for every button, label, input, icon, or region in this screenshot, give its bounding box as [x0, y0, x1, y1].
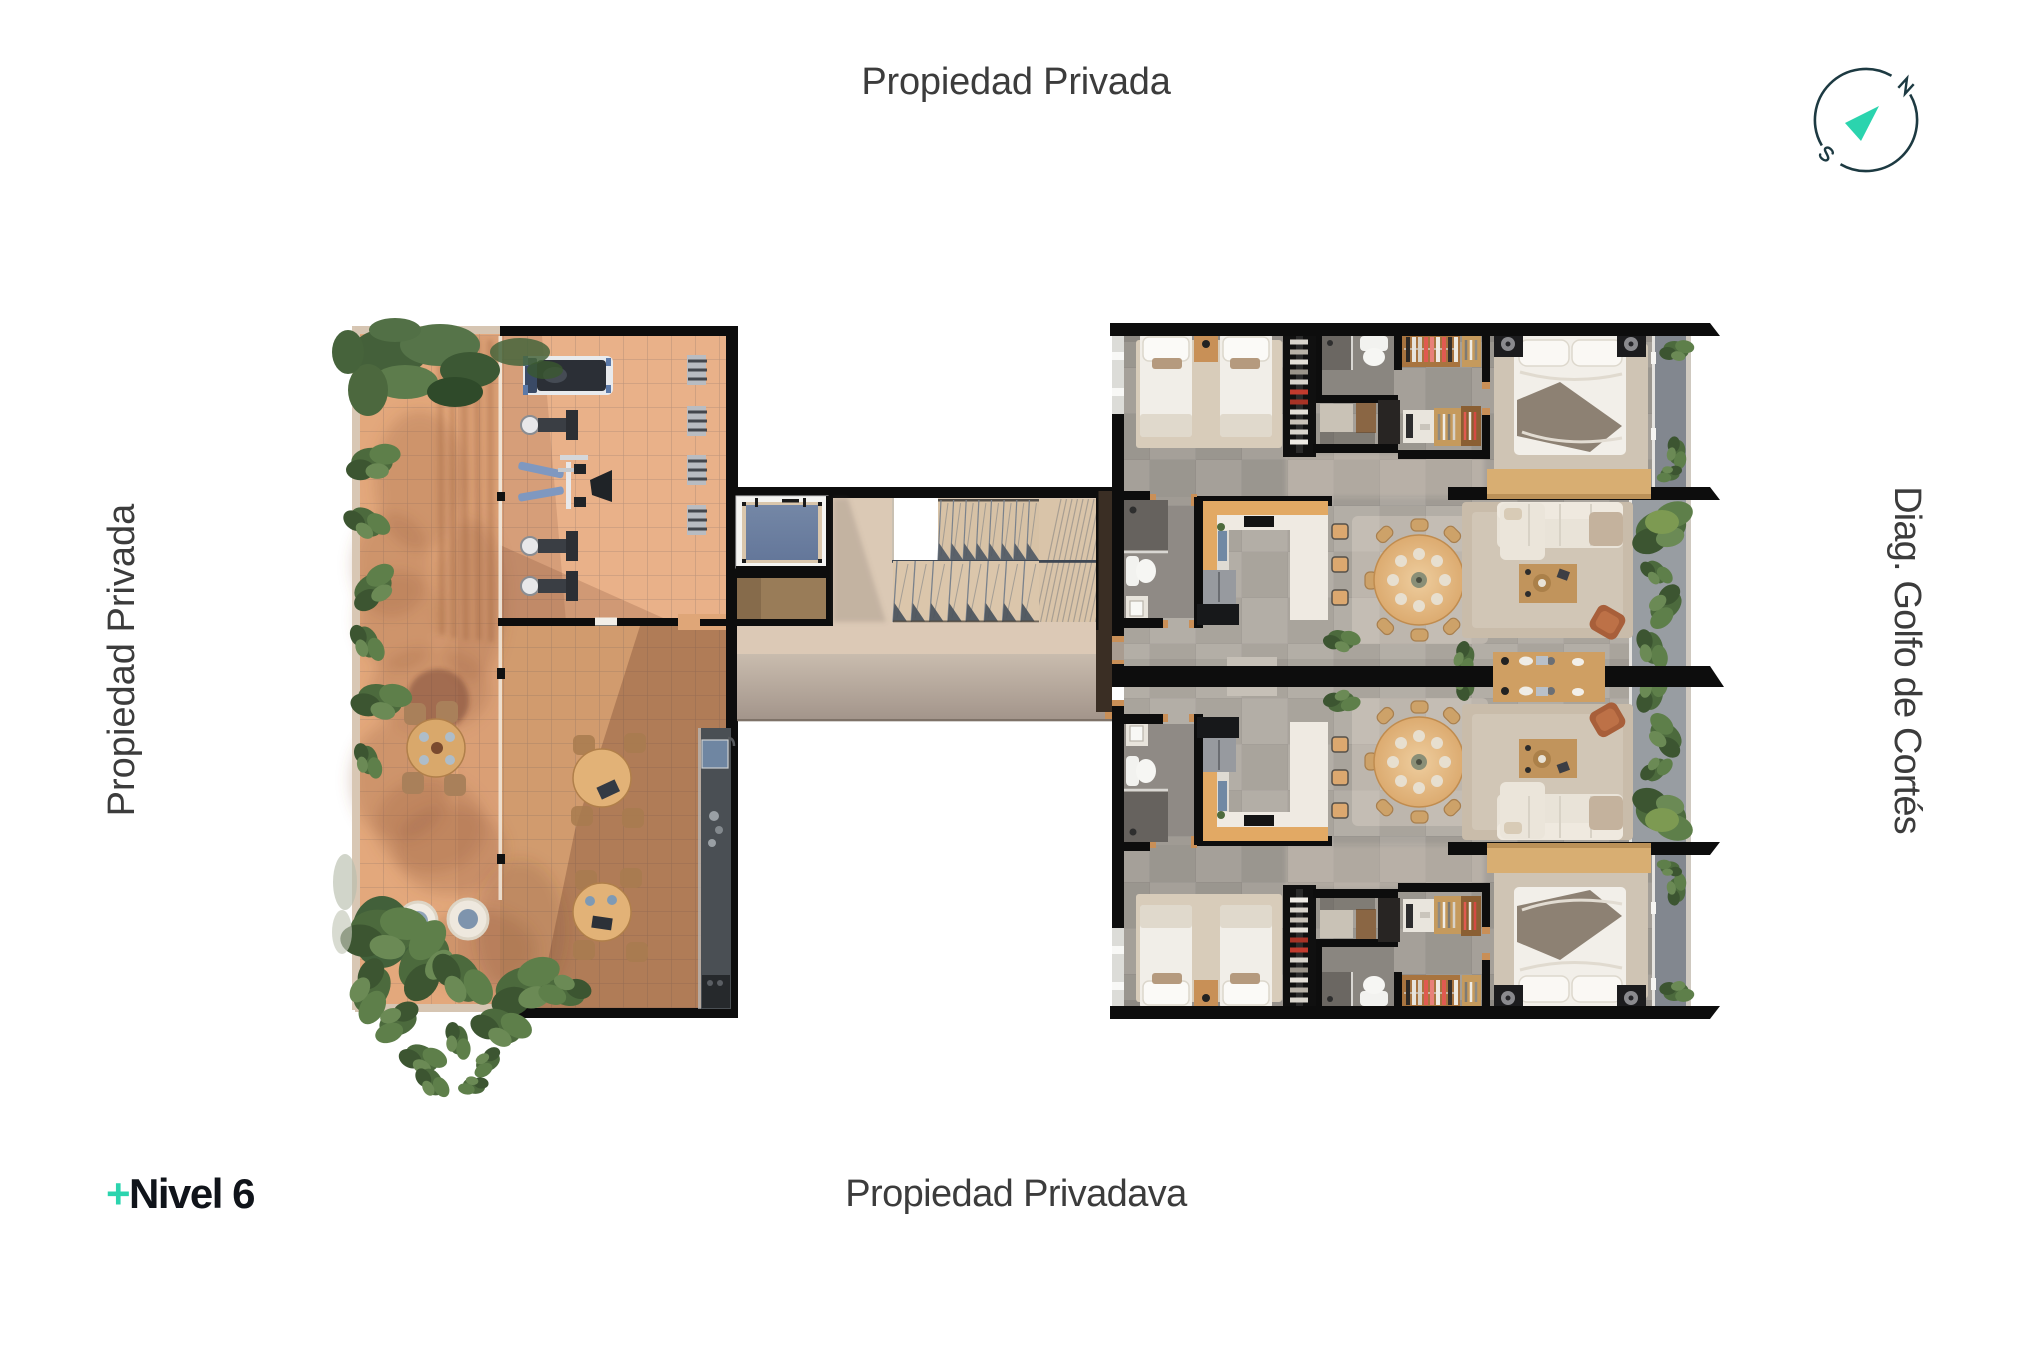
svg-text:Diag. Golfo de Cortés: Diag. Golfo de Cortés: [1886, 486, 1928, 834]
svg-text:+Nivel 6: +Nivel 6: [106, 1170, 254, 1217]
svg-text:Propiedad Privada: Propiedad Privada: [861, 61, 1171, 103]
svg-text:Propiedad Privadava: Propiedad Privadava: [845, 1173, 1188, 1215]
svg-text:Propiedad Privada: Propiedad Privada: [101, 503, 143, 817]
